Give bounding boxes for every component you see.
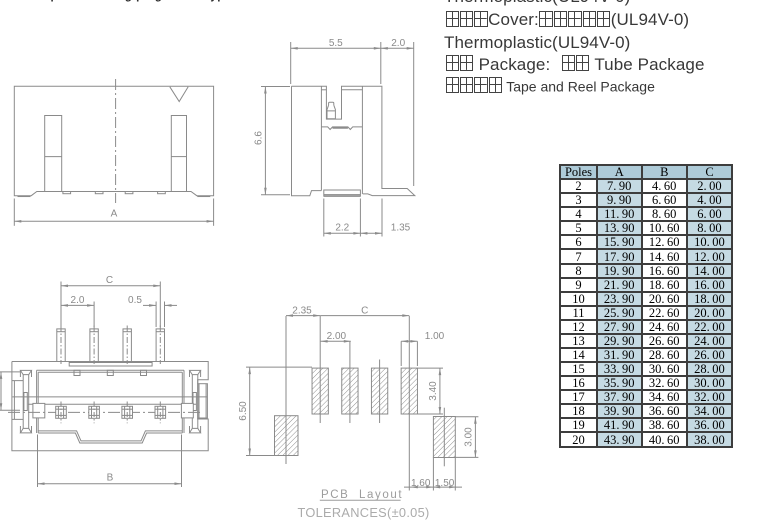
svg-text:B: B (107, 473, 114, 484)
svg-text:5.5: 5.5 (329, 38, 343, 49)
svg-text:A: A (111, 209, 118, 220)
svg-text:6.6: 6.6 (254, 131, 265, 145)
svg-text:1.35: 1.35 (391, 222, 411, 233)
svg-text:6.50: 6.50 (238, 401, 249, 421)
svg-text:2.2: 2.2 (335, 222, 349, 233)
svg-text:2.35: 2.35 (292, 305, 312, 316)
svg-text:1.60: 1.60 (411, 478, 431, 489)
svg-text:1.50: 1.50 (435, 478, 455, 489)
svg-text:3.40: 3.40 (428, 381, 439, 401)
svg-text:C: C (361, 305, 368, 316)
svg-text:2.0: 2.0 (391, 38, 405, 49)
svg-text:2.00: 2.00 (327, 331, 347, 342)
svg-text:C: C (106, 275, 113, 286)
svg-text:2.0: 2.0 (71, 295, 85, 306)
svg-text:0.5: 0.5 (128, 295, 142, 306)
svg-text:1.00: 1.00 (425, 331, 445, 342)
svg-text:3.00: 3.00 (463, 427, 474, 447)
